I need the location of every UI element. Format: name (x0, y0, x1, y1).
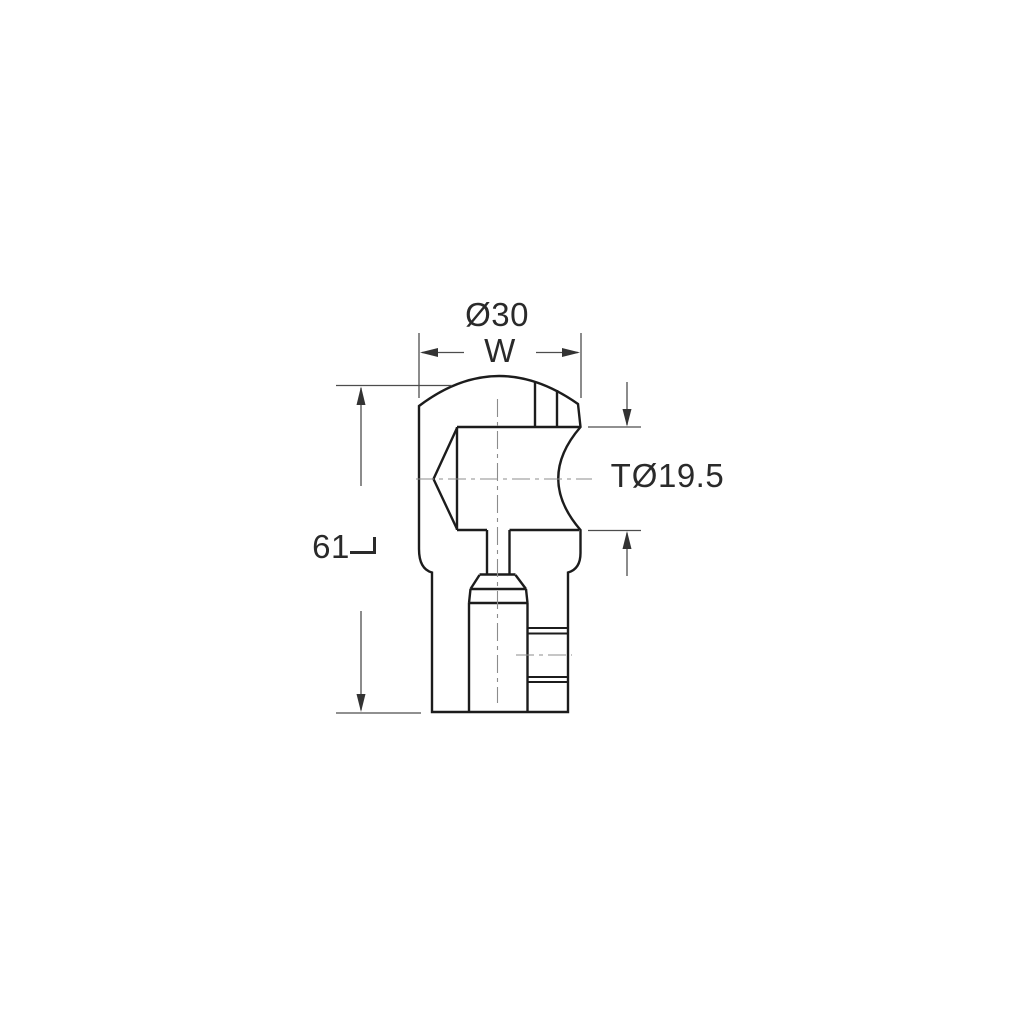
thickness-arrow-down (623, 409, 632, 427)
length-value-label: 61 (312, 530, 350, 563)
width-arrow-left (420, 348, 438, 357)
technical-drawing (0, 0, 1024, 1024)
thickness-arrow-up (623, 531, 632, 549)
bell-flare-left (471, 575, 480, 589)
width-arrow-right (562, 348, 580, 357)
thickness-letter-label: T (611, 459, 632, 492)
bell-taper-left (469, 589, 471, 603)
centerlines (416, 399, 592, 703)
corner-bracket-icon (350, 537, 376, 554)
length-arrow-down (357, 694, 366, 712)
thickness-diameter-label: Ø19.5 (632, 459, 724, 492)
bell-flare-right (516, 575, 527, 589)
drawing-canvas: Ø30 W 61 T Ø19.5 (0, 0, 1024, 1024)
part-outline (419, 376, 581, 712)
bell-taper-right (526, 589, 528, 603)
width-letter-label: W (484, 334, 516, 367)
top-diameter-label: Ø30 (465, 298, 529, 331)
length-arrow-up (357, 387, 366, 406)
